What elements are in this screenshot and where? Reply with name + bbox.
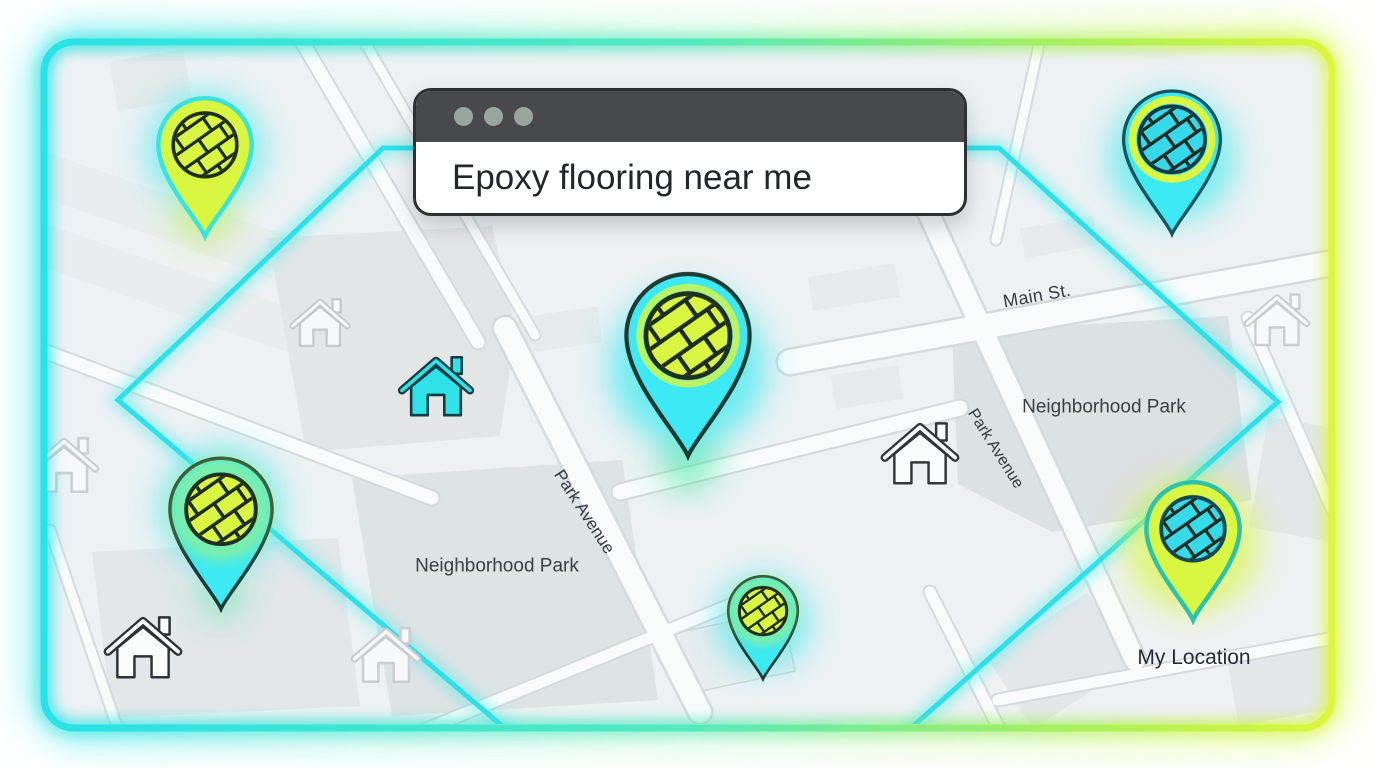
park-label-right: Neighborhood Park [1019, 396, 1189, 421]
park-label-left: Neighborhood Park [412, 555, 582, 580]
window-control-dot-icon [454, 107, 473, 126]
house-icon [47, 438, 95, 492]
my-location-label: My Location [1137, 646, 1250, 670]
search-bar[interactable]: Epoxy flooring near me [416, 142, 964, 213]
search-query-text[interactable]: Epoxy flooring near me [452, 158, 812, 198]
window-control-dot-icon [514, 107, 533, 126]
browser-search-window: Epoxy flooring near me [413, 88, 967, 216]
map-illustration: Main St. Park Avenue Park Avenue Neighbo… [0, 0, 1376, 768]
window-titlebar [416, 91, 964, 142]
map-pin-top-right[interactable] [1124, 91, 1221, 234]
map-canvas[interactable]: Main St. Park Avenue Park Avenue Neighbo… [47, 45, 1329, 724]
window-control-dot-icon [484, 107, 503, 126]
house-icon [1247, 295, 1306, 345]
